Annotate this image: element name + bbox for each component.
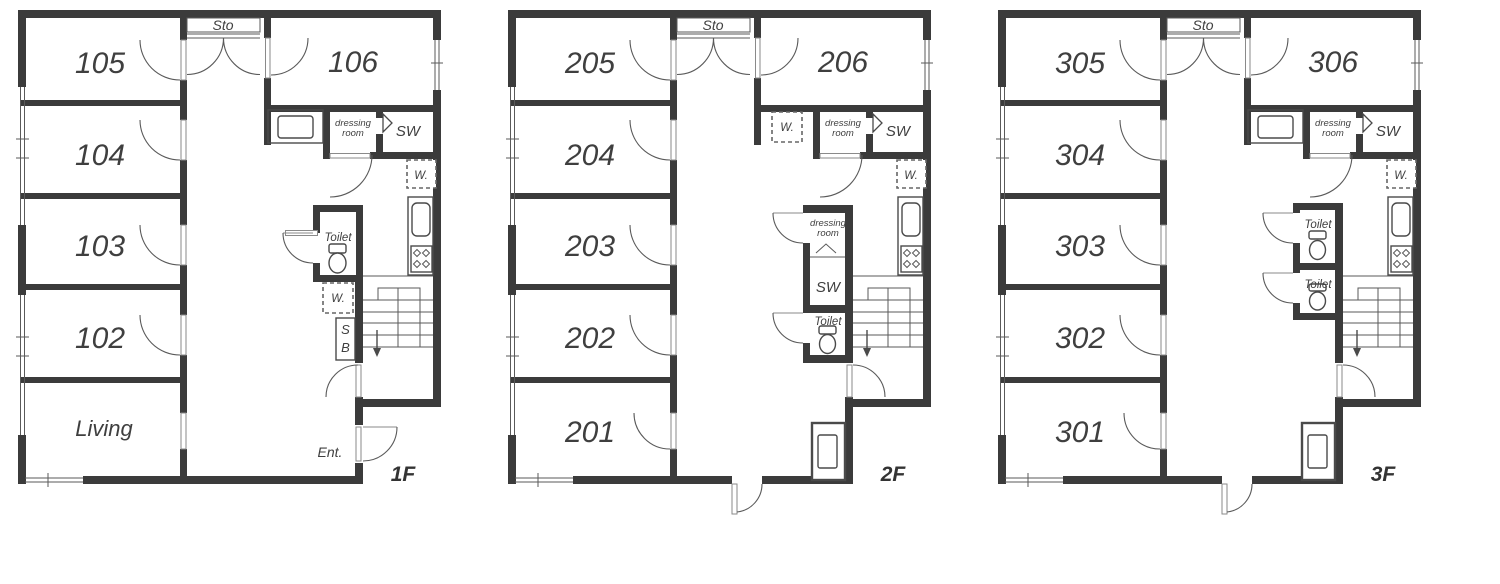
room-label: 206: [817, 46, 868, 79]
room-label: 105: [75, 47, 125, 80]
room-label: 103: [75, 230, 125, 263]
stove-icon: [1391, 246, 1412, 272]
room-label: 305: [1055, 47, 1105, 80]
pipe-space-closet: [812, 423, 845, 480]
living-label: Living: [75, 416, 133, 441]
stove-icon: [411, 246, 432, 272]
dressing-room-door: [1310, 154, 1352, 198]
washer-label: W.: [780, 122, 794, 134]
room-label: 106: [328, 46, 378, 79]
room-label: 301: [1055, 416, 1105, 449]
room-label: 202: [564, 322, 615, 355]
toilet-label: Toilet: [814, 316, 842, 328]
room-doors-1f: [140, 38, 308, 449]
sink-icon: [902, 203, 920, 236]
hall-stair-door-1f: [326, 365, 361, 397]
room-label: 303: [1055, 230, 1105, 263]
washer-label: W.: [331, 293, 345, 305]
toilet-label: Toilet: [1304, 219, 1332, 231]
toilet-tank-icon: [1309, 231, 1326, 239]
entrance-door: [356, 427, 397, 461]
room-label: 306: [1308, 46, 1358, 79]
washing-counter: [268, 110, 323, 143]
hall-stair-door-3f: [1337, 365, 1375, 397]
shower-label: SW: [886, 123, 912, 140]
dressing-room-door: [330, 154, 372, 198]
floorplan-2f: 205 204 203 202 201 Sto 206 W. dressing …: [498, 0, 988, 544]
toilet-tank-icon: [329, 244, 346, 253]
room-label: 304: [1055, 139, 1105, 172]
storage-label: Sto: [702, 17, 723, 33]
toilet-bowl-icon: [820, 335, 836, 354]
dressing-label: room: [1322, 128, 1344, 139]
room-label: 104: [75, 139, 125, 172]
stairs-2f: [853, 288, 923, 357]
floor-label: 3F: [1371, 463, 1397, 486]
labels-3f: 305 304 303 302 301 Sto 306 dressing roo…: [1055, 17, 1408, 486]
toilet-label: Toilet: [324, 232, 352, 244]
stairs-3f: [1343, 288, 1413, 357]
floorplan-3f: 305 304 303 302 301 Sto 306 dressing roo…: [988, 0, 1478, 544]
stairs-1f: [363, 288, 433, 357]
shower-door-mark: [1363, 114, 1372, 132]
room-label: 102: [75, 322, 125, 355]
shower-label: SW: [1376, 123, 1402, 140]
hall-stair-door-2f: [847, 365, 885, 397]
washing-counter: [1248, 110, 1303, 143]
toilet-label: Toilet: [1304, 279, 1332, 291]
bottom-door-3f: [1222, 484, 1252, 514]
room-label: 203: [564, 230, 615, 263]
floorplan-1f: 105 104 103 102 Living Sto 106 dressing …: [8, 0, 498, 544]
washer-label: W.: [904, 170, 918, 182]
labels-1f: 105 104 103 102 Living Sto 106 dressing …: [75, 17, 428, 486]
shower-door-mark: [873, 114, 882, 132]
dressing-room-door: [820, 154, 862, 198]
shoebox-label: B: [341, 340, 350, 355]
room-doors-3f: [1120, 38, 1288, 449]
storage-label: Sto: [212, 17, 233, 33]
bottom-door-2f: [732, 484, 762, 514]
toilet-bowl-icon: [329, 253, 346, 273]
sink-icon: [412, 203, 430, 236]
room-label: 302: [1055, 322, 1105, 355]
sink-icon: [1392, 203, 1410, 236]
room-doors-2f: [630, 38, 798, 449]
shower-label: SW: [396, 123, 422, 140]
room-label: 204: [564, 139, 615, 172]
dressing-label: room: [832, 128, 854, 139]
dressing-label: room: [342, 128, 364, 139]
floorplan-canvas: 105 104 103 102 Living Sto 106 dressing …: [0, 0, 1500, 584]
floor-label: 1F: [391, 463, 417, 486]
room-label: 201: [564, 416, 615, 449]
floor-label: 2F: [880, 463, 907, 486]
toilet-bowl-icon: [1310, 241, 1326, 260]
entrance-label: Ent.: [318, 444, 343, 460]
room-label: 205: [564, 47, 615, 80]
washer-label: W.: [1394, 170, 1408, 182]
toilet-bowl-icon: [1310, 292, 1326, 310]
pipe-space-closet: [1302, 423, 1335, 480]
washer-label: W.: [414, 170, 428, 182]
shoebox-label: S: [341, 322, 350, 337]
stove-icon: [901, 246, 922, 272]
labels-2f: 205 204 203 202 201 Sto 206 W. dressing …: [564, 17, 918, 486]
folding-door-icon: [816, 244, 836, 253]
shower-label: SW: [816, 279, 842, 296]
dressing-label: room: [817, 228, 839, 239]
shower-door-mark: [383, 114, 392, 132]
storage-label: Sto: [1192, 17, 1213, 33]
